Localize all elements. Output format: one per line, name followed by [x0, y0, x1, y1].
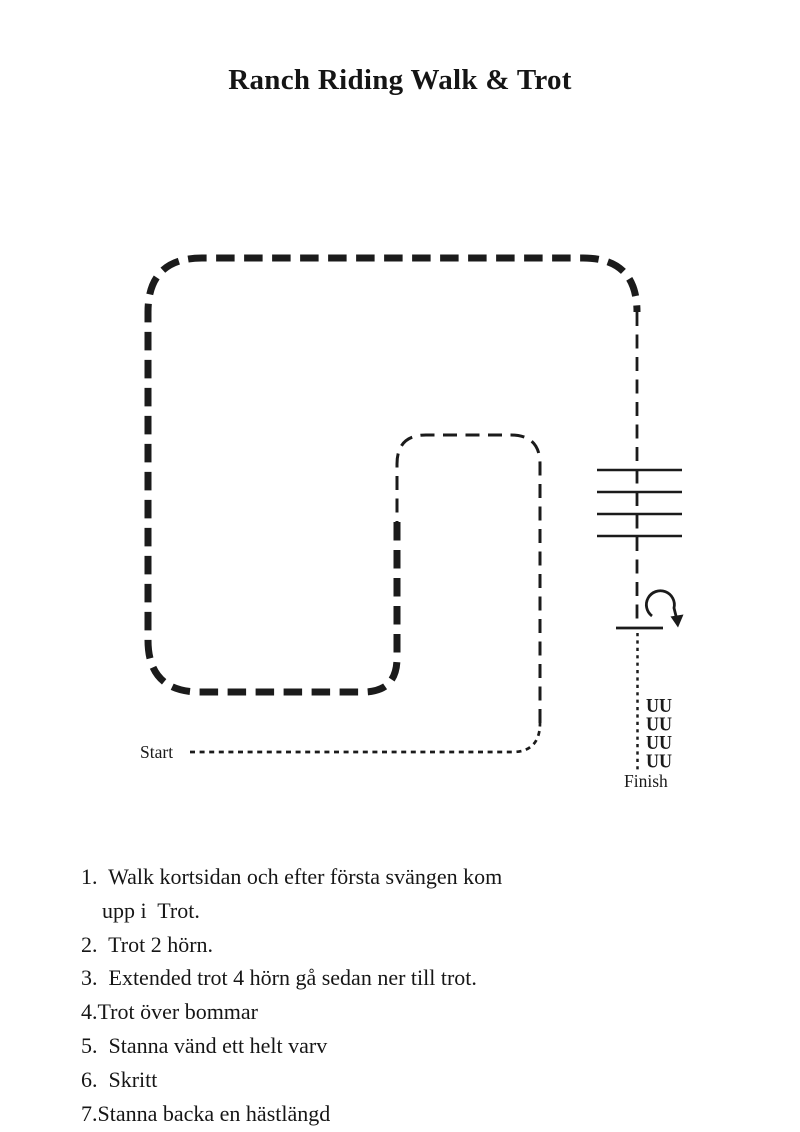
instruction-list: 1. Walk kortsidan och efter första sväng…: [81, 860, 741, 1130]
spin-360-icon: [646, 591, 683, 628]
walk-start-path: [190, 723, 540, 752]
instruction-item-2: 2. Trot 2 hörn.: [81, 928, 741, 962]
instruction-item-1-cont: upp i Trot.: [81, 894, 741, 928]
trot-poles: [597, 470, 682, 536]
instruction-item-7: 7.Stanna backa en hästlängd: [81, 1097, 741, 1131]
spin-loop: [646, 591, 676, 618]
start-label: Start: [140, 742, 173, 762]
pattern-page: Ranch Riding Walk & Trot UU UU: [0, 0, 800, 1132]
instruction-item-3: 3. Extended trot 4 hörn gå sedan ner til…: [81, 961, 741, 995]
instruction-item-1: 1. Walk kortsidan och efter första sväng…: [81, 860, 741, 894]
backup-mark-row: UU: [646, 751, 672, 773]
backup-marks: UU UU UU UU: [646, 695, 672, 773]
instruction-item-6: 6. Skritt: [81, 1063, 741, 1097]
trot-inner-path: [397, 435, 540, 723]
instruction-item-4: 4.Trot över bommar: [81, 995, 741, 1029]
finish-label: Finish: [624, 771, 668, 791]
instruction-item-5: 5. Stanna vänd ett helt varv: [81, 1029, 741, 1063]
spin-arrowhead: [671, 615, 684, 628]
extended-trot-path: [148, 258, 637, 692]
